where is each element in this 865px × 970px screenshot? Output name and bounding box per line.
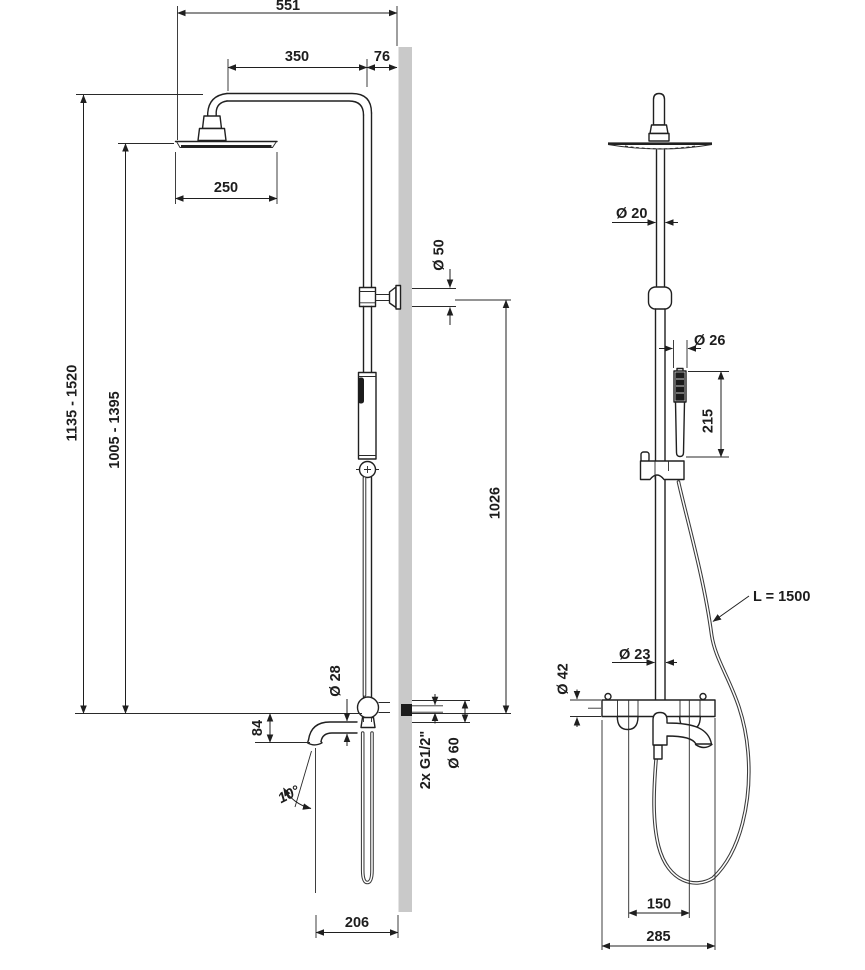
- dim-spout-drop: 84: [250, 720, 266, 736]
- dim-bracket-to-outlet: 1026: [488, 487, 504, 519]
- dim-inlet-thread: 2x G1/2": [418, 731, 434, 789]
- hose-connector: [654, 745, 662, 759]
- front-view: [588, 94, 749, 883]
- dim-spout-diameter: Ø 28: [328, 665, 344, 696]
- mixer-front: [588, 694, 715, 748]
- overhead-shower-side: [176, 142, 278, 148]
- dim-handset-diameter: Ø 26: [694, 333, 725, 349]
- diverter-handle: [358, 378, 364, 404]
- dim-lower-riser-diameter: Ø 23: [619, 647, 650, 663]
- dim-body-diameter: Ø 42: [556, 663, 572, 694]
- overhead-shower-front: [608, 144, 712, 149]
- hand-shower-hose-side: [363, 478, 372, 883]
- dim-bracket-rosette: Ø 50: [432, 239, 448, 270]
- shower-system-dimensional-drawing: 551 350 76 250 1135 - 1520 1005 - 1395 1…: [0, 0, 865, 970]
- front-view-dimensions: Ø 20 Ø 26 215 L = 1500 Ø 23 Ø 42 150 285: [556, 206, 811, 950]
- diverter-sleeve: [358, 373, 376, 460]
- dim-spout-reach: 206: [345, 915, 369, 931]
- side-view-dimensions: 551 350 76 250 1135 - 1520 1005 - 1395 1…: [65, 0, 512, 938]
- wall-bracket-side: [360, 286, 401, 310]
- arm-stub-front: [654, 94, 665, 126]
- dim-inlet-rosette: Ø 60: [447, 737, 463, 768]
- hand-shower: [674, 369, 686, 457]
- dim-head-diameter: 250: [214, 180, 238, 196]
- dim-wall-clearance: 76: [374, 49, 390, 65]
- dim-body-width: 285: [646, 929, 670, 945]
- wall-bracket-front: [649, 287, 672, 309]
- dim-arm-projection: 350: [285, 49, 309, 65]
- swivel-joint: [356, 462, 379, 478]
- dim-riser-diameter: Ø 20: [616, 206, 647, 222]
- wall-connection: [401, 704, 412, 716]
- head-connector-nut: [203, 116, 222, 129]
- hand-shower-hose-front: [654, 482, 749, 883]
- wall-section: [399, 47, 413, 912]
- technical-drawing-page: 551 350 76 250 1135 - 1520 1005 - 1395 1…: [0, 0, 865, 970]
- mixer-knob-left: [617, 717, 638, 730]
- mixer-side: [358, 697, 471, 728]
- dim-total-width: 551: [276, 0, 300, 14]
- dim-inlet-spacing: 150: [647, 897, 671, 913]
- dim-hose-length: L = 1500: [753, 589, 810, 605]
- dim-overall-height: 1135 - 1520: [65, 365, 81, 442]
- dim-head-height: 1005 - 1395: [107, 391, 123, 468]
- dim-handset-length: 215: [701, 409, 717, 433]
